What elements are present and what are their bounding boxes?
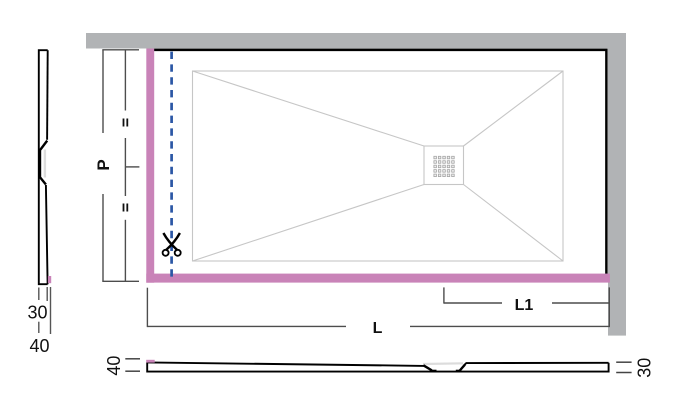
svg-text:30: 30	[27, 303, 47, 323]
svg-text:30: 30	[635, 358, 655, 378]
svg-text:P: P	[94, 159, 113, 170]
svg-text:L1: L1	[515, 297, 534, 314]
svg-text:40: 40	[29, 336, 49, 356]
svg-text:L: L	[373, 320, 383, 337]
svg-text:40: 40	[104, 356, 124, 376]
